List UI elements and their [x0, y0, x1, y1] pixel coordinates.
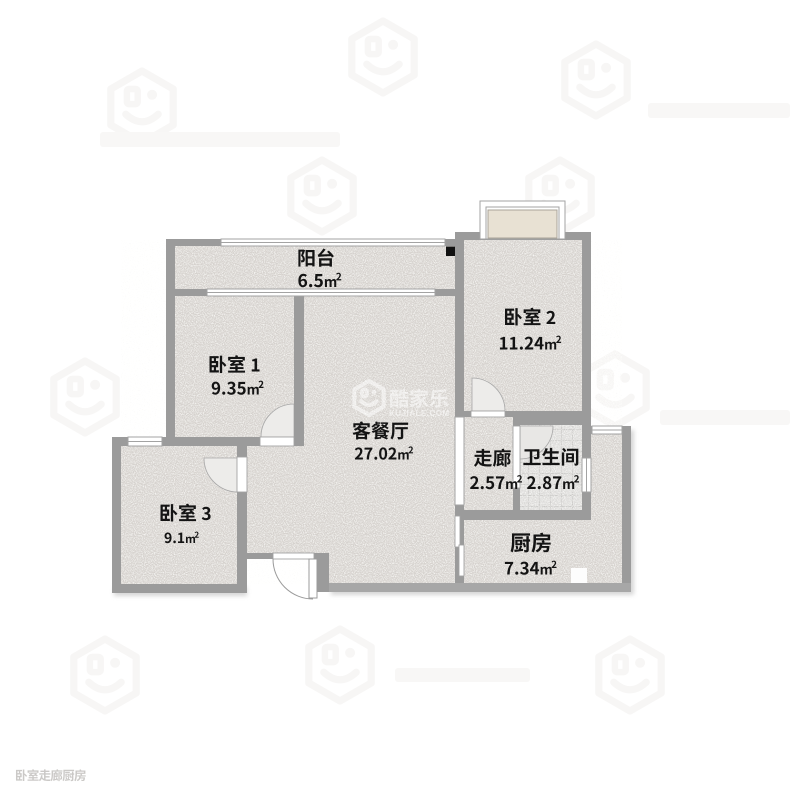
svg-text:KUJIALE.COM: KUJIALE.COM [389, 409, 450, 418]
